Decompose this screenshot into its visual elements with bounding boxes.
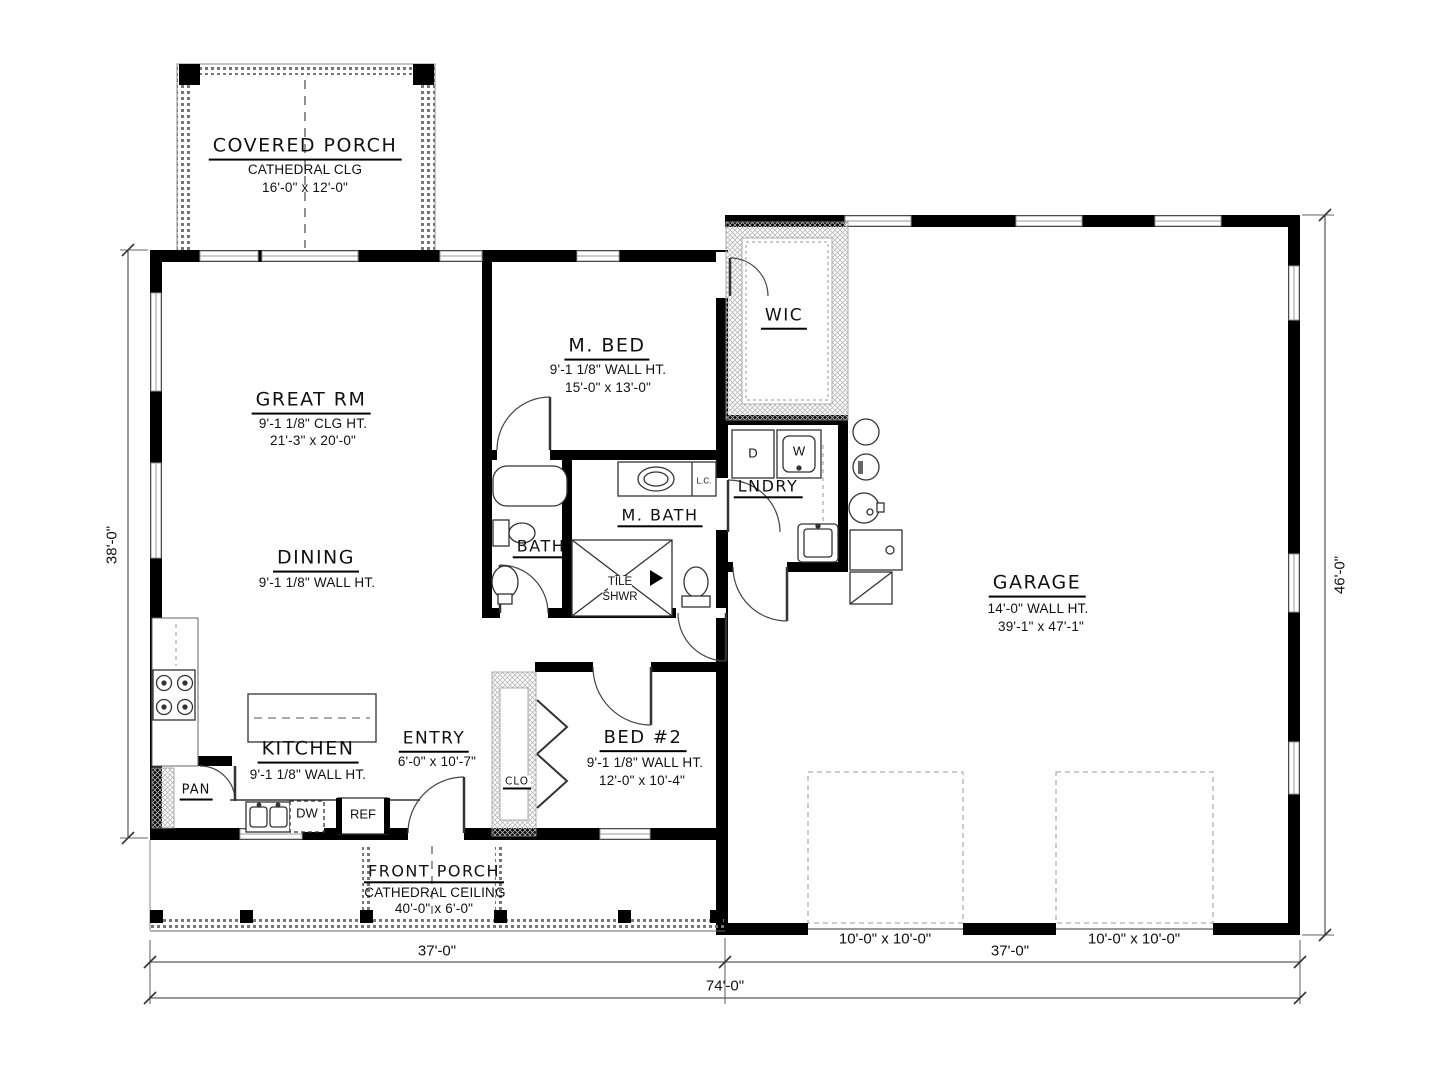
garage-ceiling: 14'-0" WALL HT. xyxy=(988,601,1089,617)
toilet-tank xyxy=(493,520,509,546)
bed2-size: 12'-0" x 10'-4" xyxy=(599,773,685,789)
floor-plan: COVERED PORCH CATHEDRAL CLG 16'-0" x 12'… xyxy=(0,0,1445,1071)
covered-porch-size: 16'-0" x 12'-0" xyxy=(262,180,348,196)
water-softener xyxy=(853,454,879,480)
bifold-door xyxy=(537,700,567,754)
front-porch-ceiling: CATHEDRAL CEILING xyxy=(364,885,505,901)
dim-garage-door-2: 10'-0" x 10'-0" xyxy=(1088,930,1180,947)
linen-cabinet-label: L.C. xyxy=(697,476,712,485)
porch-post xyxy=(150,910,163,923)
front-porch-size: 40'-0" x 6'-0" xyxy=(395,901,473,917)
dryer-label: D xyxy=(748,447,757,462)
bath-fixtures xyxy=(492,466,567,604)
bed2-door xyxy=(593,667,651,725)
dim-house-width: 37'-0" xyxy=(418,942,456,959)
refrigerator-label: REF xyxy=(350,808,376,823)
toilet-tank xyxy=(682,596,710,607)
bathtub xyxy=(493,466,567,506)
washer-label: W xyxy=(793,445,805,460)
room-label-entry: ENTRY xyxy=(399,730,469,753)
room-label-front-porch: FRONT PORCH xyxy=(364,862,504,883)
room-label-clo: CLO xyxy=(503,770,531,789)
porch-post xyxy=(413,64,434,85)
toilet-bowl xyxy=(684,567,708,597)
room-label-m-bed: M. BED xyxy=(564,336,649,361)
dim-garage-width: 37'-0" xyxy=(991,942,1029,959)
great-rm-ceiling: 9'-1 1/8" CLG HT. xyxy=(259,416,367,432)
room-label-m-bath: M. BATH xyxy=(618,506,703,527)
room-label-garage: GARAGE xyxy=(989,573,1086,598)
floor-plan-drawing xyxy=(0,0,1445,1071)
great-rm-size: 21'-3" x 20'-0" xyxy=(270,433,356,449)
room-label-covered-porch: COVERED PORCH xyxy=(209,136,402,161)
porch-post xyxy=(618,910,631,923)
porch-post xyxy=(710,910,723,923)
mbath-fixtures xyxy=(572,462,716,616)
pressure-tank xyxy=(849,493,879,523)
m-bed-ceiling: 9'-1 1/8" WALL HT. xyxy=(550,362,667,378)
garage-size: 39'-1" x 47'-1" xyxy=(998,619,1084,635)
porch-post xyxy=(494,910,507,923)
room-label-kitchen: KITCHEN xyxy=(258,739,359,764)
bifold-door xyxy=(537,754,567,808)
kitchen-fixtures xyxy=(152,618,420,834)
porch-post xyxy=(360,910,373,923)
clo-structure xyxy=(492,672,567,836)
room-label-bed2: BED #2 xyxy=(600,728,687,752)
entry-size: 6'-0" x 10'-7" xyxy=(398,754,476,770)
room-label-lndry: LNDRY xyxy=(734,477,803,498)
water-heater xyxy=(853,419,879,445)
tile-shwr-line1: TILE xyxy=(608,576,632,590)
covered-porch-ceiling: CATHEDRAL CLG xyxy=(248,162,362,178)
porch-post xyxy=(240,910,253,923)
room-label-great-rm: GREAT RM xyxy=(252,390,371,415)
dim-total-width: 74'-0" xyxy=(706,977,744,994)
room-label-dining: DINING xyxy=(273,548,359,573)
sink-base xyxy=(498,594,512,604)
kitchen-ceiling: 9'-1 1/8" WALL HT. xyxy=(250,767,367,783)
garage-entry-door xyxy=(733,567,787,621)
dim-house-depth: 38'-0" xyxy=(103,526,120,564)
garage-utilities xyxy=(849,419,902,604)
room-label-pan: PAN xyxy=(180,780,213,801)
pedestal-sink xyxy=(492,566,518,598)
dim-garage-depth: 46'-0" xyxy=(1331,556,1348,594)
room-label-bath: BATH xyxy=(513,537,569,558)
dishwasher-label: DW xyxy=(296,807,318,822)
dining-ceiling: 9'-1 1/8" WALL HT. xyxy=(259,575,376,591)
bed2-ceiling: 9'-1 1/8" WALL HT. xyxy=(587,755,704,771)
front-door xyxy=(408,777,464,833)
tile-shwr-line2: SHWR xyxy=(602,591,637,605)
garage-overhead-doors xyxy=(808,772,1213,923)
mbed-door xyxy=(497,397,550,450)
porch-post xyxy=(179,64,200,85)
dim-garage-door-1: 10'-0" x 10'-0" xyxy=(839,930,931,947)
room-label-wic: WIC xyxy=(761,307,807,330)
m-bed-size: 15'-0" x 13'-0" xyxy=(565,380,651,396)
